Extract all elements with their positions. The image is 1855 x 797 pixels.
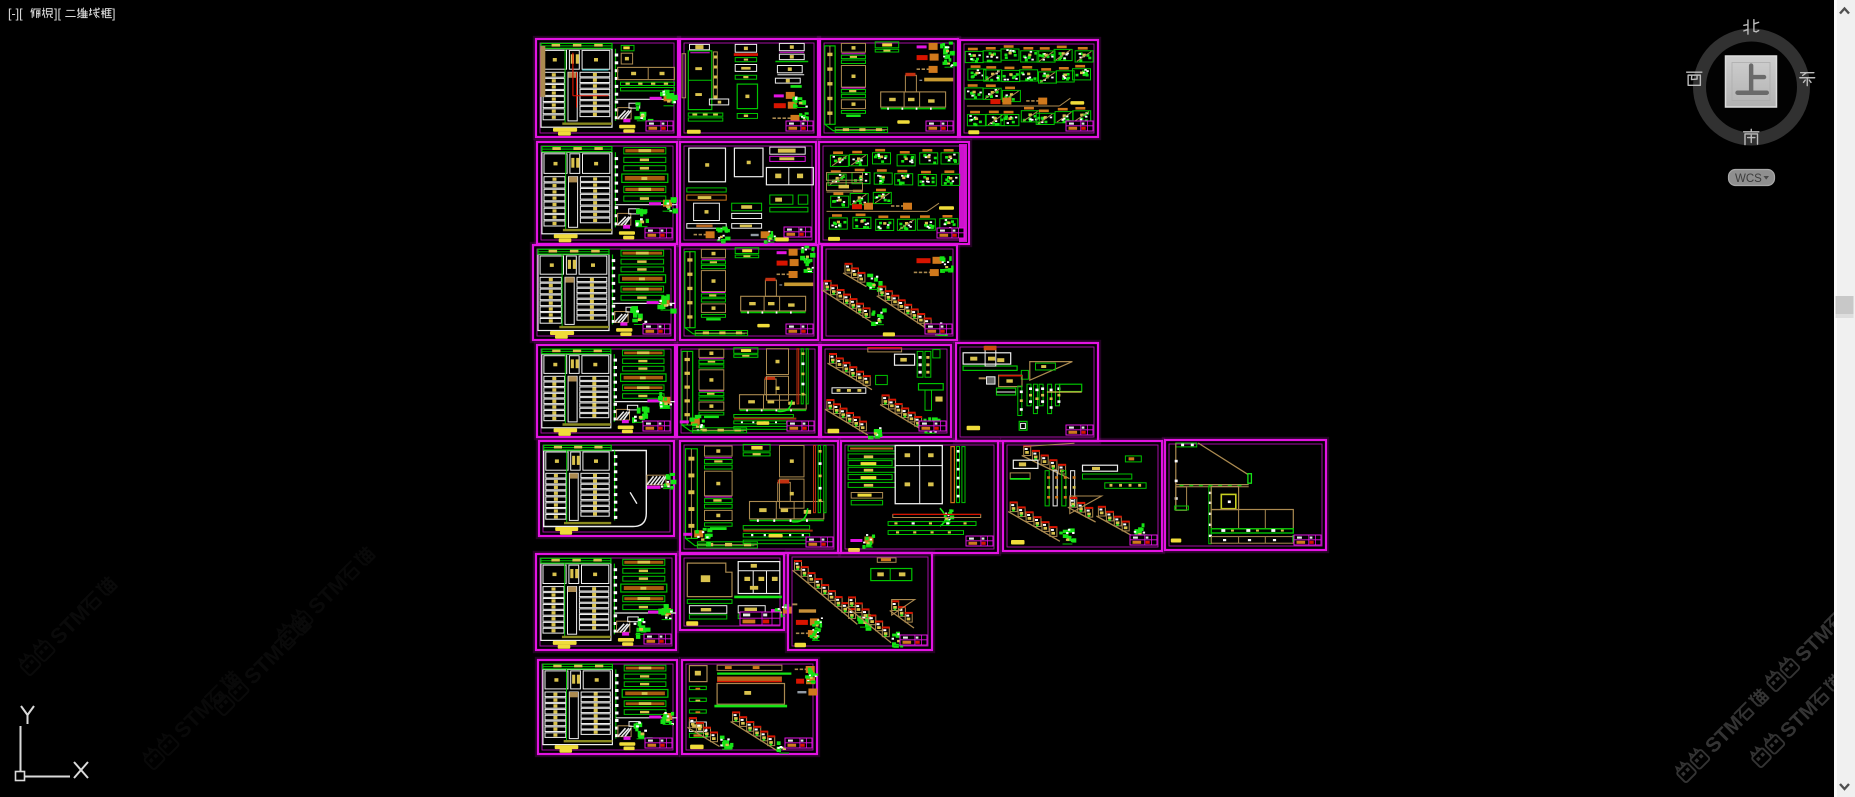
svg-text:][: ][ (54, 7, 61, 21)
svg-text:WCS: WCS (1735, 173, 1762, 185)
svg-text:[-][: [-][ (8, 7, 23, 21)
svg-text:]: ] (112, 7, 115, 21)
